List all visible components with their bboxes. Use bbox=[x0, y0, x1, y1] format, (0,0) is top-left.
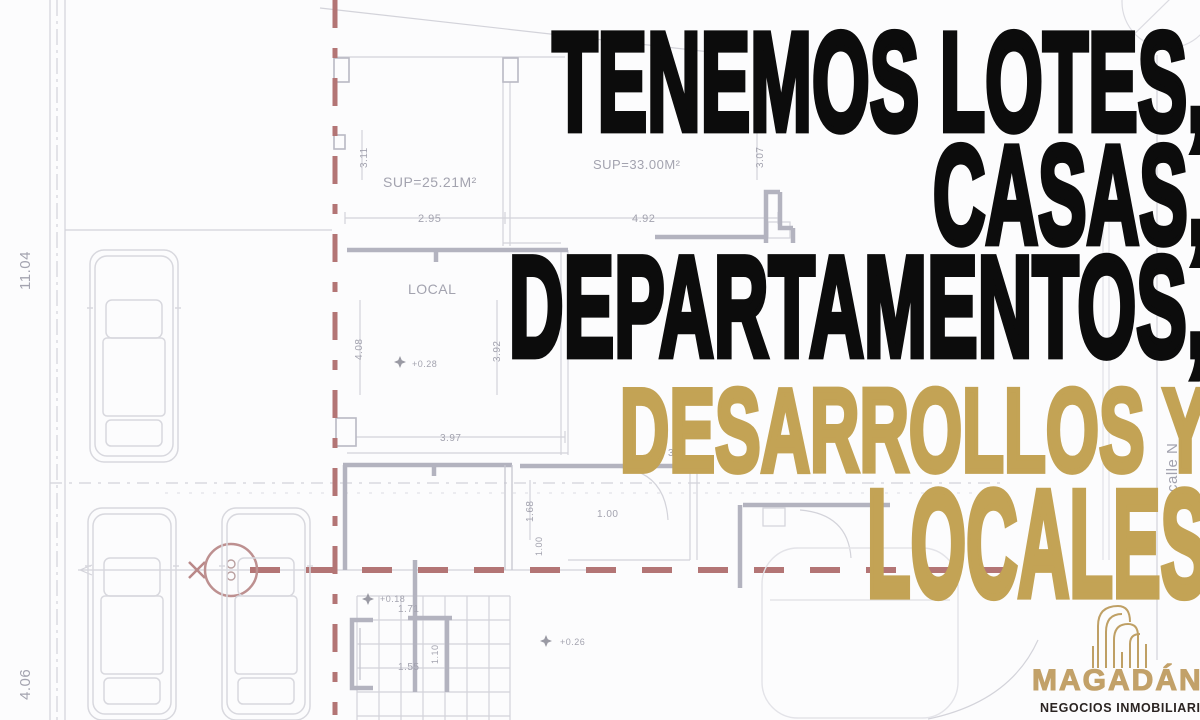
svg-text:4.06: 4.06 bbox=[17, 669, 34, 700]
svg-text:1.00: 1.00 bbox=[597, 509, 618, 520]
svg-text:3.97: 3.97 bbox=[440, 433, 461, 444]
svg-text:LOCAL: LOCAL bbox=[408, 281, 456, 297]
brand-name: MAGADÁN bbox=[1032, 664, 1200, 698]
svg-text:2.95: 2.95 bbox=[418, 213, 441, 225]
headline-line-3: DEPARTAMENTOS, bbox=[509, 236, 1200, 379]
svg-text:1.68: 1.68 bbox=[525, 501, 536, 522]
svg-text:+0.28: +0.28 bbox=[412, 359, 437, 369]
svg-text:1.55: 1.55 bbox=[398, 662, 419, 673]
svg-text:SUP=25.21M²: SUP=25.21M² bbox=[383, 174, 477, 190]
svg-text:11.04: 11.04 bbox=[17, 251, 34, 290]
svg-text:4.92: 4.92 bbox=[632, 213, 655, 225]
building-outline-icon bbox=[1090, 600, 1152, 668]
svg-text:1.00: 1.00 bbox=[534, 536, 544, 556]
svg-text:1.71: 1.71 bbox=[398, 604, 419, 615]
flyer-canvas: 11.044.06SUP=25.21M²SUP=33.00M²LOCAL2.95… bbox=[0, 0, 1200, 720]
svg-text:4.08: 4.08 bbox=[354, 339, 365, 360]
parking-cars bbox=[85, 250, 313, 720]
svg-text:+0.26: +0.26 bbox=[560, 637, 585, 647]
headline-line-5: LOCALES bbox=[867, 468, 1200, 620]
svg-text:1.10: 1.10 bbox=[430, 644, 440, 664]
svg-text:3.92: 3.92 bbox=[492, 341, 503, 362]
brand-tagline: NEGOCIOS INMOBILIARIOS bbox=[1040, 701, 1200, 715]
svg-text:+0.18: +0.18 bbox=[380, 594, 405, 604]
svg-text:3.11: 3.11 bbox=[359, 147, 370, 168]
